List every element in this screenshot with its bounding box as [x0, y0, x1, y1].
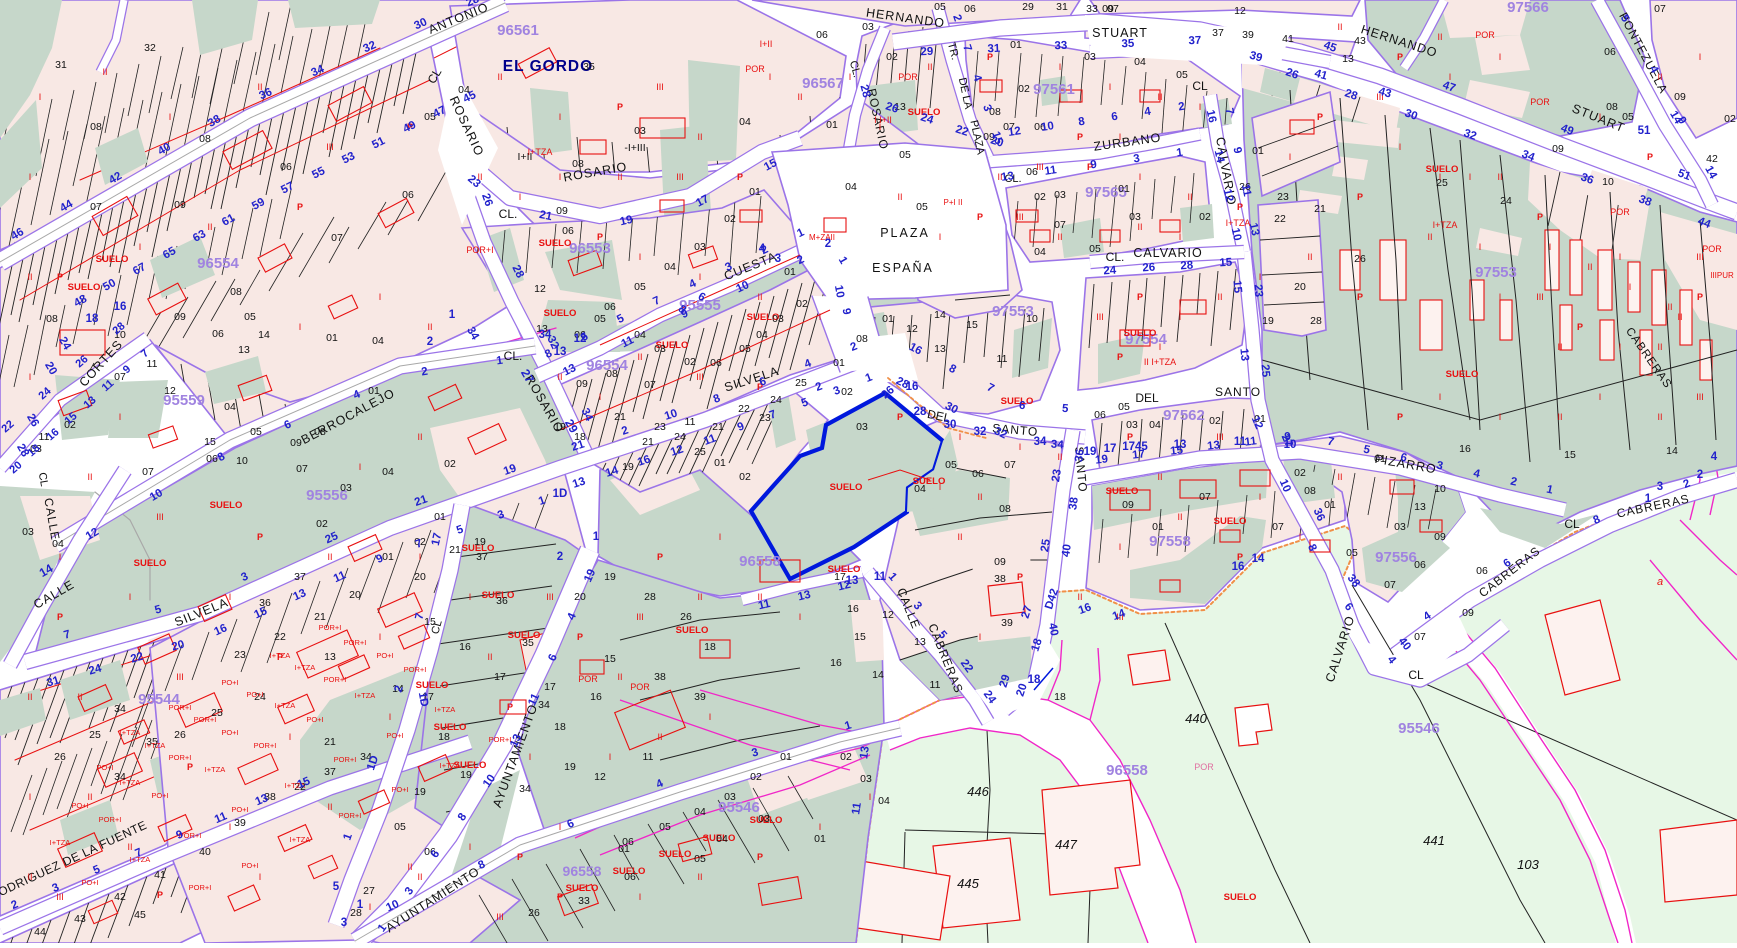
svg-text:PO+I: PO+I [221, 678, 238, 687]
svg-text:40: 40 [1046, 622, 1060, 637]
svg-text:II: II [1557, 342, 1562, 352]
svg-text:15: 15 [1219, 257, 1233, 270]
svg-text:I: I [1199, 102, 1202, 112]
svg-text:22: 22 [274, 631, 286, 643]
svg-text:95546: 95546 [1398, 720, 1440, 737]
svg-text:16: 16 [459, 641, 471, 653]
svg-text:EL GORDO: EL GORDO [503, 58, 593, 75]
svg-text:I: I [639, 252, 642, 262]
svg-text:I: I [1619, 342, 1622, 352]
svg-text:I: I [1109, 82, 1112, 92]
svg-text:ESPAÑA: ESPAÑA [872, 261, 934, 275]
svg-text:01: 01 [833, 357, 845, 369]
svg-text:21: 21 [1314, 203, 1326, 215]
svg-text:96558: 96558 [1106, 762, 1148, 779]
svg-text:21: 21 [712, 421, 724, 433]
svg-text:I: I [959, 432, 962, 442]
svg-text:I+II: I+II [760, 39, 773, 49]
svg-text:SUELO: SUELO [659, 849, 692, 860]
svg-text:14: 14 [872, 669, 884, 681]
svg-text:II: II [557, 372, 562, 382]
svg-text:07: 07 [1654, 3, 1666, 15]
svg-text:II: II [427, 322, 432, 332]
svg-text:09: 09 [174, 311, 186, 323]
svg-text:III: III [696, 372, 704, 382]
svg-text:I+TZA: I+TZA [205, 765, 226, 774]
svg-text:16: 16 [590, 691, 602, 703]
svg-text:I: I [1549, 242, 1552, 252]
svg-text:3: 3 [341, 917, 347, 929]
svg-text:01: 01 [1324, 499, 1336, 511]
svg-text:16: 16 [1459, 443, 1471, 455]
svg-text:03: 03 [860, 773, 872, 785]
svg-text:34: 34 [1034, 436, 1047, 448]
svg-text:II: II [1137, 222, 1142, 232]
svg-text:08: 08 [999, 503, 1011, 515]
svg-text:I: I [29, 792, 32, 802]
svg-text:I: I [849, 72, 852, 82]
svg-text:04: 04 [756, 329, 768, 341]
svg-text:2: 2 [1697, 469, 1703, 481]
svg-text:SUELO: SUELO [1001, 396, 1034, 407]
svg-text:26: 26 [54, 751, 66, 763]
svg-text:POR: POR [1702, 244, 1722, 254]
svg-text:a: a [1657, 576, 1663, 588]
svg-text:I: I [299, 322, 302, 332]
svg-text:11: 11 [997, 353, 1008, 365]
svg-text:03: 03 [634, 125, 646, 137]
svg-text:I: I [559, 112, 562, 122]
svg-text:02: 02 [750, 771, 762, 783]
svg-text:I: I [1499, 292, 1502, 302]
svg-text:05: 05 [250, 426, 262, 438]
svg-text:II: II [1587, 262, 1592, 272]
svg-text:15: 15 [424, 616, 436, 628]
svg-text:I: I [1059, 62, 1062, 72]
svg-text:25: 25 [795, 377, 807, 389]
svg-text:06: 06 [1604, 46, 1616, 58]
svg-text:I+TZA: I+TZA [528, 147, 553, 157]
svg-text:04: 04 [634, 329, 646, 341]
svg-text:05: 05 [1622, 111, 1634, 123]
svg-text:POR: POR [745, 64, 765, 74]
svg-text:11: 11 [930, 679, 941, 691]
svg-text:I: I [1619, 252, 1622, 262]
svg-text:25: 25 [1039, 538, 1053, 553]
svg-text:19: 19 [622, 461, 634, 473]
svg-text:II: II [1427, 232, 1432, 242]
svg-text:POR+I: POR+I [99, 815, 122, 824]
svg-text:I: I [119, 412, 122, 422]
svg-text:06: 06 [604, 301, 616, 313]
svg-text:15: 15 [604, 653, 616, 665]
svg-text:05: 05 [634, 281, 646, 293]
svg-text:08: 08 [314, 426, 326, 438]
svg-text:13: 13 [1207, 439, 1221, 452]
svg-text:36: 36 [496, 595, 508, 607]
svg-text:34: 34 [519, 783, 531, 795]
svg-text:07: 07 [1004, 459, 1016, 471]
svg-text:31: 31 [987, 43, 1001, 56]
svg-text:08: 08 [1606, 101, 1618, 113]
svg-text:97556: 97556 [1375, 549, 1417, 566]
svg-text:I: I [939, 482, 942, 492]
svg-text:35: 35 [522, 637, 534, 649]
svg-text:I: I [559, 822, 562, 832]
svg-text:P: P [57, 272, 63, 282]
svg-text:07: 07 [114, 371, 126, 383]
svg-text:31: 31 [1056, 1, 1068, 13]
svg-text:20: 20 [1294, 281, 1306, 293]
svg-text:III: III [1536, 292, 1544, 302]
svg-text:16: 16 [114, 301, 127, 313]
svg-text:II: II [1077, 592, 1082, 602]
svg-text:I: I [129, 592, 132, 602]
svg-text:I+TZA: I+TZA [275, 701, 296, 710]
svg-text:I: I [529, 752, 532, 762]
svg-text:02: 02 [841, 386, 853, 398]
svg-text:04: 04 [382, 466, 394, 478]
svg-text:P: P [507, 702, 513, 712]
svg-text:I: I [29, 172, 32, 182]
svg-text:II: II [797, 92, 802, 102]
svg-text:02: 02 [724, 213, 736, 225]
svg-text:05: 05 [916, 201, 928, 213]
svg-text:P+I II: P+I II [944, 198, 963, 207]
svg-text:15: 15 [204, 436, 216, 448]
svg-text:19: 19 [1095, 453, 1109, 466]
svg-text:P: P [977, 212, 983, 222]
svg-text:P: P [657, 552, 663, 562]
svg-text:04: 04 [372, 335, 384, 347]
svg-text:07: 07 [1272, 521, 1284, 533]
svg-text:II: II [417, 872, 422, 882]
svg-text:PO+I: PO+I [96, 763, 113, 772]
svg-text:08: 08 [1304, 485, 1316, 497]
svg-text:2: 2 [427, 336, 433, 348]
svg-text:05: 05 [899, 149, 911, 161]
svg-text:18: 18 [554, 721, 566, 733]
svg-text:03: 03 [758, 813, 770, 825]
svg-text:04: 04 [52, 538, 64, 550]
svg-text:14: 14 [1666, 445, 1678, 457]
svg-text:03: 03 [1126, 419, 1138, 431]
svg-text:P: P [1537, 212, 1543, 222]
svg-text:02: 02 [840, 751, 852, 763]
svg-text:04: 04 [914, 483, 926, 495]
svg-text:CL.: CL. [1106, 250, 1125, 264]
svg-text:II: II [1437, 32, 1442, 42]
svg-text:POR: POR [1530, 97, 1550, 107]
svg-text:06: 06 [972, 468, 984, 480]
svg-text:25: 25 [1258, 364, 1271, 378]
svg-text:I: I [1299, 532, 1302, 542]
svg-text:POR+I: POR+I [324, 675, 347, 684]
svg-text:11: 11 [1234, 436, 1247, 448]
svg-text:I: I [769, 72, 772, 82]
svg-text:17: 17 [544, 681, 556, 693]
svg-text:II: II [957, 532, 962, 542]
svg-text:I: I [139, 242, 142, 252]
svg-text:SUELO: SUELO [416, 680, 449, 691]
svg-text:II: II [757, 292, 762, 302]
svg-text:II: II [327, 802, 332, 812]
svg-text:45: 45 [134, 909, 146, 921]
svg-text:II: II [697, 872, 702, 882]
svg-text:07: 07 [1199, 491, 1211, 503]
svg-text:I: I [469, 592, 472, 602]
svg-text:PO+I: PO+I [151, 791, 168, 800]
svg-text:97558: 97558 [1149, 533, 1191, 550]
svg-text:12: 12 [1234, 5, 1246, 17]
svg-text:02: 02 [1294, 467, 1306, 479]
svg-text:09: 09 [994, 556, 1006, 568]
svg-text:07: 07 [296, 463, 308, 475]
svg-text:31: 31 [55, 59, 67, 71]
svg-text:3: 3 [1657, 481, 1663, 493]
svg-text:12: 12 [164, 385, 176, 397]
svg-text:III: III [326, 142, 334, 152]
svg-text:I: I [1139, 172, 1142, 182]
svg-text:P: P [737, 172, 743, 182]
svg-text:SUELO: SUELO [676, 625, 709, 636]
svg-text:I: I [519, 192, 522, 202]
svg-text:17: 17 [1104, 443, 1117, 455]
svg-text:09: 09 [1674, 91, 1686, 103]
svg-text:POR+I: POR+I [466, 245, 493, 255]
svg-text:07: 07 [331, 232, 343, 244]
svg-text:03: 03 [22, 526, 34, 538]
svg-text:-I+III: -I+III [624, 142, 645, 154]
svg-text:15: 15 [966, 319, 978, 331]
svg-text:P: P [617, 102, 623, 112]
svg-text:4: 4 [759, 243, 766, 255]
svg-text:96558: 96558 [739, 553, 781, 570]
svg-text:SUELO: SUELO [566, 883, 599, 894]
svg-text:05: 05 [739, 343, 751, 355]
svg-text:37: 37 [1188, 35, 1201, 47]
svg-text:26: 26 [1142, 262, 1156, 275]
svg-text:I: I [229, 822, 232, 832]
svg-text:09: 09 [1552, 143, 1564, 155]
svg-text:I: I [1259, 272, 1262, 282]
svg-text:40: 40 [1060, 543, 1074, 557]
svg-text:I: I [819, 312, 822, 322]
svg-text:37: 37 [476, 551, 488, 563]
svg-text:I: I [169, 112, 172, 122]
svg-text:II: II [417, 432, 422, 442]
svg-text:II: II [1667, 302, 1672, 312]
svg-text:09: 09 [174, 199, 186, 211]
svg-text:I: I [1469, 172, 1472, 182]
svg-text:43: 43 [1354, 35, 1366, 47]
svg-text:13: 13 [1000, 170, 1014, 184]
svg-text:40: 40 [199, 846, 211, 858]
svg-text:13: 13 [554, 346, 567, 358]
svg-text:03: 03 [1394, 521, 1406, 533]
svg-text:06: 06 [624, 871, 636, 883]
svg-text:06: 06 [622, 836, 634, 848]
svg-text:440: 440 [1185, 711, 1207, 726]
svg-text:37: 37 [324, 766, 336, 778]
svg-text:97566: 97566 [1507, 0, 1549, 16]
svg-text:16: 16 [1232, 561, 1245, 573]
svg-text:11: 11 [874, 571, 887, 583]
svg-text:II: II [1187, 192, 1192, 202]
svg-text:III: III [156, 512, 164, 522]
svg-text:16: 16 [830, 657, 842, 669]
svg-text:11: 11 [643, 751, 654, 763]
svg-text:97553: 97553 [1475, 264, 1517, 281]
svg-text:I: I [939, 232, 942, 242]
svg-text:97562: 97562 [1163, 407, 1205, 424]
svg-text:II: II [1157, 472, 1162, 482]
svg-text:SUELO: SUELO [134, 558, 167, 569]
svg-text:21: 21 [449, 544, 461, 556]
svg-text:P: P [1017, 572, 1023, 582]
svg-text:441: 441 [1423, 833, 1445, 848]
svg-text:I: I [389, 712, 392, 722]
svg-text:II: II [327, 552, 332, 562]
svg-text:06: 06 [1414, 559, 1426, 571]
svg-text:19: 19 [564, 761, 576, 773]
svg-text:29: 29 [920, 46, 933, 58]
svg-text:II: II [407, 862, 412, 872]
svg-text:08: 08 [572, 158, 584, 170]
svg-text:02: 02 [1034, 191, 1046, 203]
svg-text:P: P [1357, 292, 1363, 302]
svg-text:13: 13 [1342, 53, 1354, 65]
svg-text:II: II [1177, 512, 1182, 522]
svg-text:13: 13 [934, 343, 946, 355]
svg-text:11: 11 [685, 416, 696, 428]
svg-text:01: 01 [1118, 183, 1130, 195]
svg-text:06: 06 [212, 328, 224, 340]
svg-text:18: 18 [1028, 674, 1041, 686]
svg-text:06: 06 [562, 225, 574, 237]
svg-text:08: 08 [856, 333, 868, 345]
svg-text:I: I [559, 172, 562, 182]
svg-text:SUELO: SUELO [96, 254, 129, 265]
svg-text:09: 09 [1434, 531, 1446, 543]
svg-text:III: III [1696, 392, 1704, 402]
svg-text:I: I [1439, 172, 1442, 182]
svg-text:12: 12 [594, 771, 606, 783]
svg-text:II: II [27, 692, 32, 702]
svg-text:02: 02 [684, 356, 696, 368]
svg-text:I+TZA: I+TZA [270, 651, 291, 660]
svg-text:SANTO: SANTO [1215, 385, 1261, 399]
svg-text:II: II [87, 472, 92, 482]
svg-text:II: II [897, 192, 902, 202]
svg-text:04: 04 [1034, 246, 1046, 258]
svg-text:I: I [609, 752, 612, 762]
svg-text:I: I [1599, 112, 1602, 122]
svg-text:P: P [577, 632, 583, 642]
svg-text:97561: 97561 [1033, 81, 1075, 98]
svg-text:II: II [497, 72, 502, 82]
svg-text:P: P [897, 412, 903, 422]
svg-text:PO+I: PO+I [376, 651, 393, 660]
svg-text:III: III [656, 82, 664, 92]
svg-text:20: 20 [574, 591, 586, 603]
svg-text:1745: 1745 [1122, 441, 1148, 453]
svg-text:39: 39 [234, 817, 246, 829]
svg-text:P: P [1397, 412, 1403, 422]
svg-text:05: 05 [945, 459, 957, 471]
svg-text:07: 07 [1107, 3, 1119, 15]
svg-text:02: 02 [1018, 83, 1030, 95]
svg-text:II: II [617, 672, 622, 682]
svg-text:08: 08 [90, 121, 102, 133]
svg-text:POR+I: POR+I [339, 811, 362, 820]
svg-text:I: I [1479, 242, 1482, 252]
svg-text:10: 10 [1284, 439, 1297, 451]
svg-text:29: 29 [1022, 1, 1034, 13]
svg-text:06: 06 [816, 29, 828, 41]
svg-text:08: 08 [199, 133, 211, 145]
svg-text:14: 14 [934, 309, 946, 321]
svg-text:03: 03 [340, 482, 352, 494]
svg-text:I: I [419, 552, 422, 562]
svg-text:II: II [207, 222, 212, 232]
svg-text:12: 12 [882, 609, 894, 621]
svg-text:96553: 96553 [569, 240, 611, 257]
svg-text:22: 22 [738, 403, 750, 415]
svg-text:04: 04 [739, 116, 751, 128]
svg-text:CL: CL [1408, 668, 1424, 682]
svg-text:18: 18 [1054, 691, 1066, 703]
svg-text:07: 07 [644, 379, 656, 391]
svg-text:CALVARIO: CALVARIO [1133, 246, 1202, 260]
svg-text:PLAZA: PLAZA [880, 226, 930, 240]
svg-text:19: 19 [1084, 446, 1097, 458]
svg-text:I+TZA: I+TZA [295, 663, 316, 672]
svg-text:26: 26 [174, 729, 186, 741]
svg-text:DEL: DEL [1135, 391, 1159, 405]
svg-text:18: 18 [438, 731, 450, 743]
svg-text:19: 19 [414, 786, 426, 798]
svg-text:SUELO: SUELO [1446, 369, 1479, 380]
svg-text:I: I [1119, 542, 1122, 552]
svg-text:23: 23 [1251, 284, 1264, 298]
svg-text:32: 32 [974, 426, 987, 438]
svg-text:43: 43 [74, 913, 86, 925]
svg-text:33: 33 [578, 895, 590, 907]
svg-text:I: I [869, 792, 872, 802]
svg-text:SUELO: SUELO [1426, 164, 1459, 175]
svg-text:18: 18 [86, 313, 99, 325]
svg-text:13: 13 [1174, 439, 1187, 451]
svg-text:POR+I: POR+I [319, 623, 342, 632]
svg-text:11: 11 [1044, 164, 1058, 178]
svg-text:09: 09 [1462, 607, 1474, 619]
svg-text:01: 01 [714, 457, 726, 469]
svg-text:IIIPUR: IIIPUR [1710, 271, 1734, 280]
svg-text:13: 13 [238, 344, 250, 356]
svg-text:II: II [102, 67, 107, 77]
svg-text:04: 04 [1149, 419, 1161, 431]
svg-text:I: I [469, 842, 472, 852]
svg-text:1: 1 [357, 899, 364, 911]
svg-text:06: 06 [964, 3, 976, 15]
svg-text:10: 10 [1602, 176, 1614, 188]
svg-text:01: 01 [1252, 145, 1264, 157]
svg-text:I: I [819, 822, 822, 832]
svg-text:05: 05 [1089, 243, 1101, 255]
svg-text:07: 07 [1414, 631, 1426, 643]
svg-text:28: 28 [644, 591, 656, 603]
